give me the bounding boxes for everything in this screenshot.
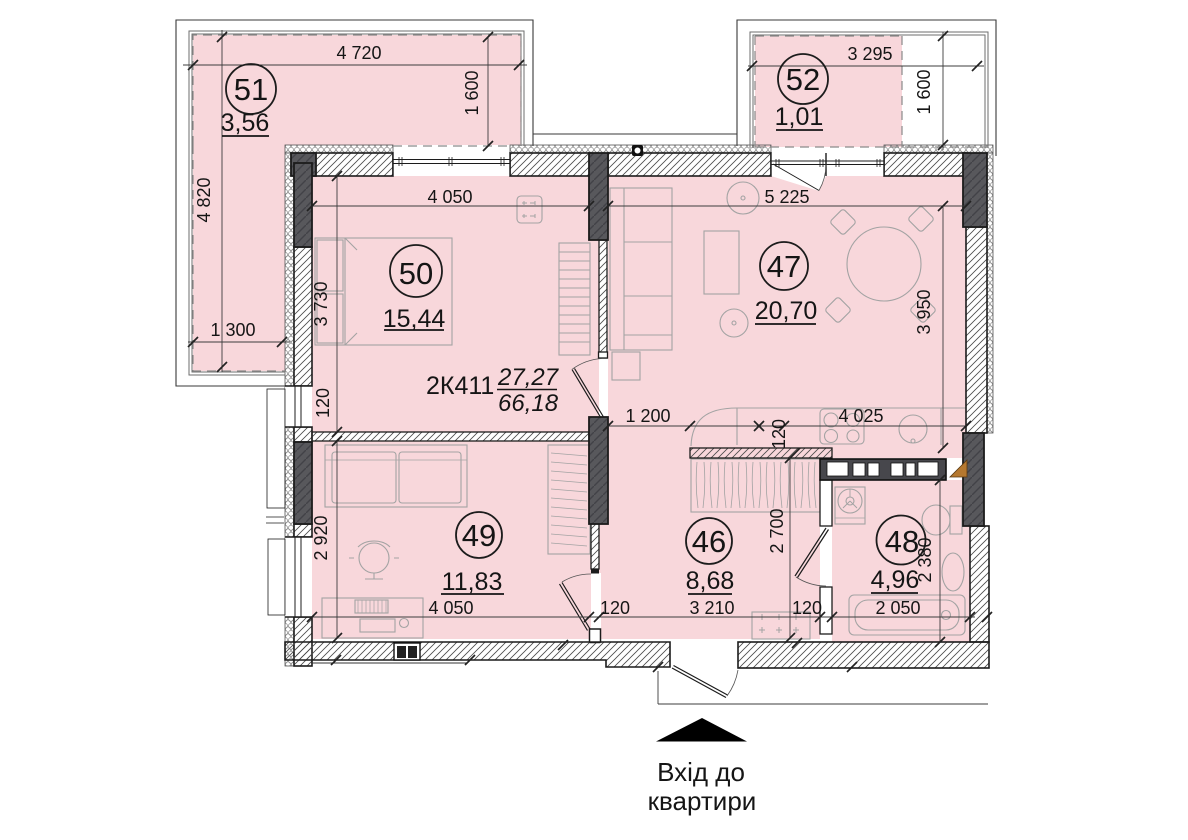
svg-text:4 720: 4 720 (336, 43, 381, 63)
svg-text:46: 46 (692, 524, 726, 559)
svg-text:15,44: 15,44 (383, 305, 446, 333)
svg-text:3 295: 3 295 (847, 44, 892, 64)
svg-text:4 050: 4 050 (428, 598, 473, 618)
svg-text:8,68: 8,68 (686, 567, 735, 595)
svg-text:120: 120 (600, 598, 630, 618)
svg-text:1,01: 1,01 (775, 103, 824, 131)
svg-text:Вхід до: Вхід до (657, 757, 745, 787)
svg-text:120: 120 (769, 419, 789, 449)
svg-text:4,96: 4,96 (871, 566, 920, 594)
svg-text:4 820: 4 820 (194, 177, 214, 222)
svg-text:2К411: 2К411 (426, 372, 494, 400)
svg-text:11,83: 11,83 (442, 568, 503, 596)
svg-text:50: 50 (399, 256, 433, 291)
svg-text:51: 51 (234, 72, 268, 107)
svg-text:4 025: 4 025 (838, 406, 883, 426)
svg-text:120: 120 (313, 388, 333, 418)
svg-text:5 225: 5 225 (764, 187, 809, 207)
svg-text:52: 52 (786, 62, 820, 97)
svg-text:66,18: 66,18 (498, 390, 559, 417)
svg-text:3 950: 3 950 (914, 289, 934, 334)
svg-text:2 920: 2 920 (311, 515, 331, 560)
svg-text:120: 120 (792, 598, 822, 618)
svg-text:1 200: 1 200 (625, 406, 670, 426)
svg-text:1 600: 1 600 (462, 70, 482, 115)
svg-text:2 050: 2 050 (875, 598, 920, 618)
svg-text:квартири: квартири (648, 786, 757, 816)
svg-text:1 300: 1 300 (210, 320, 255, 340)
svg-text:4 050: 4 050 (427, 187, 472, 207)
svg-text:27,27: 27,27 (497, 364, 560, 391)
svg-text:3 730: 3 730 (311, 281, 331, 326)
svg-text:49: 49 (462, 518, 496, 553)
svg-text:3,56: 3,56 (221, 109, 270, 137)
svg-text:3 210: 3 210 (689, 598, 734, 618)
svg-text:1 600: 1 600 (914, 69, 934, 114)
svg-text:2 380: 2 380 (915, 537, 935, 582)
svg-text:47: 47 (767, 249, 801, 284)
svg-text:20,70: 20,70 (755, 297, 818, 325)
svg-text:2 700: 2 700 (767, 508, 787, 553)
